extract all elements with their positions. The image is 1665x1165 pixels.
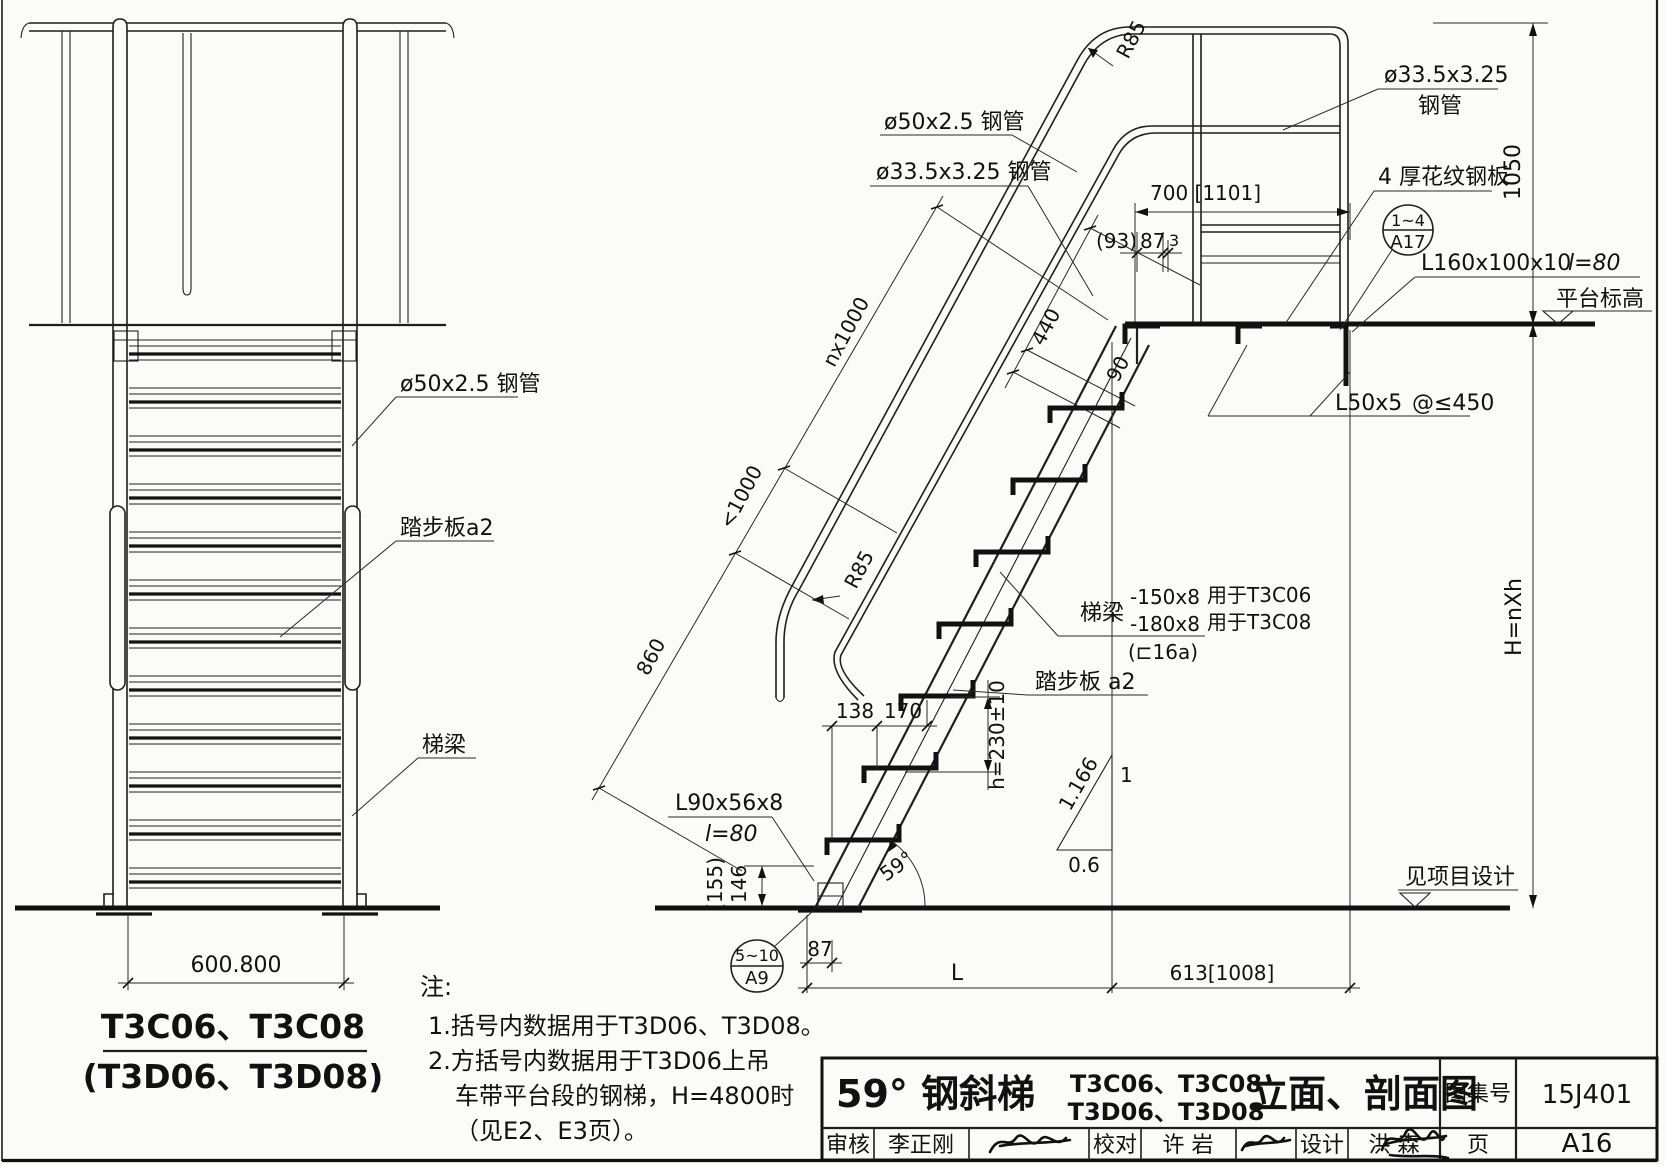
detail-a17-top: 1~4	[1391, 211, 1425, 230]
caption-line1: T3C06、T3C08	[101, 1007, 365, 1046]
label-r85-top: R85	[1111, 16, 1151, 62]
note-2-line2: 车带平台段的钢梯，H=4800时	[455, 1082, 794, 1110]
label-guard-tube-line1: ø33.5x3.25	[1384, 63, 1508, 88]
label-beam-use2: 用于T3C08	[1207, 610, 1311, 634]
left-view-caption: T3C06、T3C08 (T3D06、T3D08)	[83, 1007, 384, 1096]
slope-run-label: 0.6	[1068, 853, 1100, 877]
note-2-line3: （见E2、E3页）。	[455, 1117, 648, 1145]
title-main: 59° 钢斜梯	[836, 1072, 1035, 1116]
page-label: 页	[1467, 1133, 1489, 1158]
drawing-canvas: 600.800 ø50x2.5 钢管 踏步板a2 梯梁 T3C06、T3C08 …	[0, 0, 1665, 1165]
label-beam-spec2: -180x8	[1130, 612, 1200, 636]
dim-87-base: 87	[807, 937, 832, 961]
audit-signature	[990, 1135, 1070, 1152]
detail-a9-top: 5~10	[735, 946, 779, 965]
label-angle-top: L160x100x10	[1421, 251, 1571, 276]
proof-name: 许 岩	[1163, 1133, 1214, 1158]
label-platform-elevation: 平台标高	[1556, 287, 1644, 312]
dim-3: 3	[1169, 231, 1179, 250]
right-section-view: 59° 1.166 1 0.6 nx1000 <1000 860 440 90	[592, 16, 1652, 993]
label-beam-spec1: -150x8	[1130, 585, 1200, 609]
dim-600-800: 600.800	[191, 953, 282, 978]
dim-860: 860	[631, 634, 670, 679]
label-mid-tube: ø33.5x3.25 钢管	[876, 160, 1051, 185]
dim-L: L	[951, 961, 964, 986]
label-see-project-design: 见项目设计	[1405, 865, 1515, 890]
page-number: A16	[1562, 1129, 1613, 1159]
dim-146: (155) 146	[703, 857, 814, 911]
label-rail-tube: ø50x2.5 钢管	[884, 110, 1024, 135]
dim-170: 170	[884, 699, 922, 723]
drawing-page: 600.800 ø50x2.5 钢管 踏步板a2 梯梁 T3C06、T3C08 …	[0, 0, 1665, 1165]
detail-a17-bottom: A17	[1390, 232, 1425, 253]
dim-H-nxh: H=nXh	[1502, 578, 1527, 656]
design-label: 设计	[1300, 1133, 1344, 1158]
notes-heading: 注:	[420, 973, 452, 1001]
dim-93: (93)	[1096, 229, 1137, 253]
audit-name: 李正刚	[888, 1133, 954, 1158]
dim-87-top: 87	[1140, 229, 1165, 253]
title-suffix: 立面、剖面图	[1250, 1072, 1478, 1116]
left-view-width-dim: 600.800	[118, 915, 354, 990]
label-beam-channel-alt: (⊏16a)	[1128, 640, 1198, 664]
dim-h230-label: h=230±10	[985, 680, 1009, 790]
detail-bubble-a9: 5~10 A9	[731, 911, 813, 992]
dim-lt1000: <1000	[714, 461, 767, 532]
title-models-line1: T3C06、T3C08	[1070, 1070, 1262, 1098]
dim-angle-59: 59°	[875, 846, 918, 886]
label-tread-left: 踏步板a2	[400, 516, 493, 541]
label-beam-right: 梯梁	[1080, 601, 1124, 626]
label-l50: L50x5	[1335, 391, 1402, 416]
label-guard-tube-line2: 钢管	[1418, 94, 1462, 119]
atlas-number-label: 图集号	[1445, 1082, 1511, 1107]
caption-line2: (T3D06、T3D08)	[83, 1057, 384, 1096]
notes: 注: 1.括号内数据用于T3D06、T3D08。 2.方括号内数据用于T3D06…	[420, 973, 825, 1145]
label-checker-plate: 4 厚花纹钢板	[1378, 165, 1509, 190]
atlas-number-value: 15J401	[1542, 1080, 1632, 1110]
slope-rise-label: 1	[1120, 763, 1133, 787]
label-tube-left: ø50x2.5 钢管	[400, 372, 540, 397]
label-angle-base: L90x56x8	[675, 791, 783, 816]
dim-155: (155)	[703, 857, 727, 911]
note-2-line1: 2.方括号内数据用于T3D06上吊	[428, 1047, 770, 1075]
dim-700-label: 700 [1101]	[1150, 181, 1261, 205]
detail-bubble-a17: 1~4 A17	[1340, 205, 1433, 330]
dim-700: 700 [1101]	[1135, 181, 1350, 322]
label-beam-left: 梯梁	[422, 733, 466, 758]
label-l50-spacing: @≤450	[1412, 391, 1494, 416]
dim-146-label: 146	[727, 865, 751, 903]
title-models-line2: T3D06、T3D08	[1068, 1098, 1265, 1126]
dim-nx1000: nx1000	[818, 293, 875, 371]
label-beam-use1: 用于T3C06	[1207, 583, 1311, 607]
proof-label: 校对	[1093, 1133, 1137, 1158]
note-1: 1.括号内数据用于T3D06、T3D08。	[428, 1012, 825, 1040]
label-r85-bottom: R85	[839, 546, 879, 592]
dim-bottom: 87 L 613[1008]	[798, 937, 1360, 993]
dim-right-vertical: 1050 H=nXh	[1433, 23, 1548, 908]
dim-138: 138	[836, 699, 874, 723]
detail-a9-bottom: A9	[745, 968, 769, 989]
dim-613: 613[1008]	[1170, 961, 1275, 985]
audit-label: 审核	[826, 1133, 870, 1158]
left-view-treads	[129, 340, 341, 888]
proof-signature	[1242, 1136, 1290, 1150]
left-elevation-view: 600.800 ø50x2.5 钢管 踏步板a2 梯梁 T3C06、T3C08 …	[15, 19, 540, 1096]
label-angle-top-length: l=80	[1568, 251, 1621, 276]
slope-triangle: 1.166 1 0.6	[1054, 753, 1133, 877]
title-block: 59° 钢斜梯 T3C06、T3C08 T3D06、T3D08 立面、剖面图 图…	[822, 1058, 1657, 1160]
dim-93-87-3: (93) 87 3	[1096, 229, 1182, 272]
label-tread-right: 踏步板 a2	[1035, 670, 1135, 695]
label-angle-base-length: l=80	[705, 822, 758, 847]
